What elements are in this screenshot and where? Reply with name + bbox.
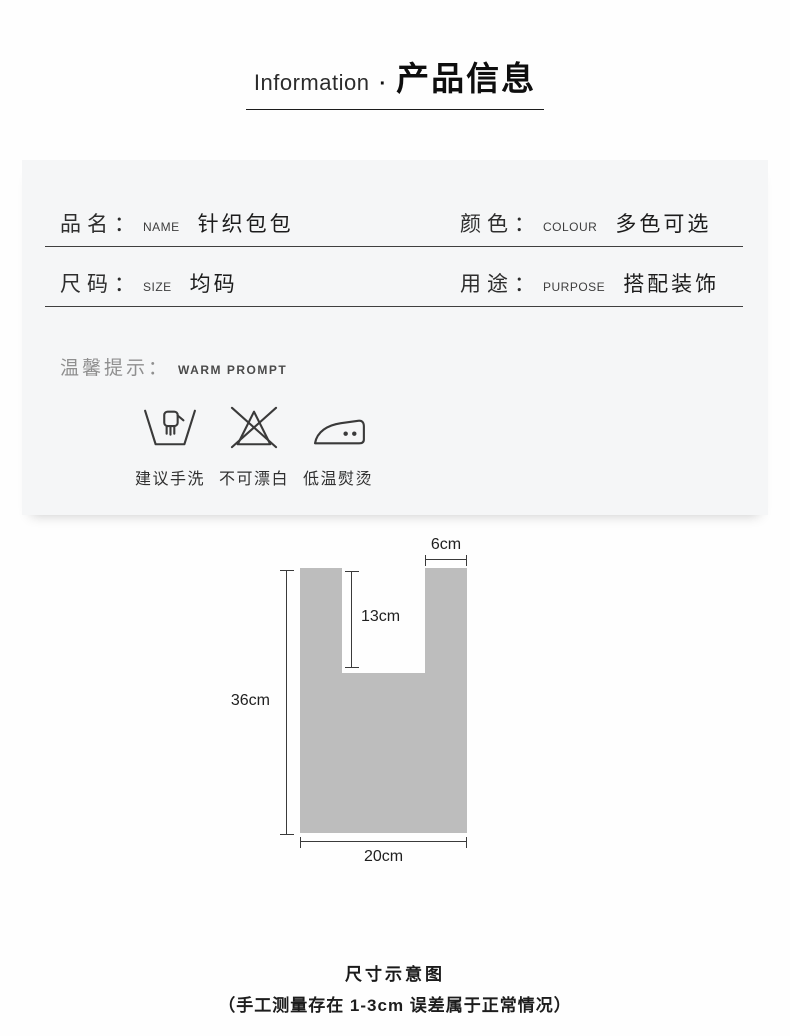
spec-value: 多色可选: [615, 208, 711, 238]
dimension-line-width: [300, 841, 467, 842]
care-item-iron-low-temp: 低温熨烫: [304, 404, 372, 489]
page-title-chinese: 产品信息: [396, 52, 536, 100]
spec-label-cn: 颜色：: [460, 208, 541, 238]
iron-low-temp-icon: [309, 404, 367, 455]
product-spec-card: 品名： NAME 针织包包 颜色： COLOUR 多色可选 尺码： SIZE 均…: [22, 160, 768, 515]
dimension-line-height: [286, 570, 287, 835]
spec-table: 品名： NAME 针织包包 颜色： COLOUR 多色可选 尺码： SIZE 均…: [45, 160, 743, 307]
care-item-do-not-bleach: 不可漂白: [220, 404, 288, 489]
care-item-hand-wash: 建议手洗: [136, 404, 204, 489]
spec-label-en: COLOUR: [543, 220, 597, 234]
page-header: Information · 产品信息: [0, 52, 790, 110]
warm-prompt-label-en: WARM PROMPT: [178, 363, 287, 377]
spec-value: 针织包包: [198, 208, 294, 238]
title-separator-dot: ·: [379, 73, 386, 96]
spec-label-cn: 品名：: [60, 208, 141, 238]
diagram-caption-note: （手工测量存在 1-3cm 误差属于正常情况）: [0, 991, 790, 1016]
spec-row-2: 尺码： SIZE 均码 用途： PURPOSE 搭配装饰: [45, 247, 743, 307]
warm-prompt-label-cn: 温馨提示：: [60, 353, 170, 380]
care-label: 低温熨烫: [303, 465, 373, 489]
spec-label-en: PURPOSE: [543, 280, 605, 294]
page-title-english: Information: [254, 70, 370, 96]
dimension-line-strap-width: [425, 559, 467, 560]
diagram-caption-title: 尺寸示意图: [0, 960, 790, 985]
do-not-bleach-icon: [225, 404, 283, 455]
care-label: 不可漂白: [219, 465, 289, 489]
care-label: 建议手洗: [135, 465, 205, 489]
warm-prompt-heading: 温馨提示： WARM PROMPT: [60, 353, 768, 380]
product-info-page: Information · 产品信息 品名： NAME 针织包包 颜色： COL…: [0, 0, 790, 1036]
spec-cell-size: 尺码： SIZE 均码: [45, 268, 394, 298]
spec-row-1: 品名： NAME 针织包包 颜色： COLOUR 多色可选: [45, 160, 743, 247]
spec-label-en: SIZE: [143, 280, 172, 294]
spec-value: 均码: [190, 268, 238, 298]
dimension-line-handle-depth: [351, 571, 352, 668]
spec-value: 搭配装饰: [623, 268, 719, 298]
bag-width-label: 20cm: [300, 848, 467, 866]
hand-wash-icon: [141, 404, 199, 455]
spec-cell-colour: 颜色： COLOUR 多色可选: [394, 208, 743, 238]
care-instructions-row: 建议手洗 不可漂白: [22, 404, 768, 489]
strap-width-label: 6cm: [419, 536, 473, 554]
spec-cell-name: 品名： NAME 针织包包: [45, 208, 394, 238]
page-title: Information · 产品信息: [246, 52, 544, 110]
spec-label-cn: 用途：: [460, 268, 541, 298]
spec-cell-purpose: 用途： PURPOSE 搭配装饰: [394, 268, 743, 298]
bag-height-label: 36cm: [212, 692, 270, 710]
spec-label-en: NAME: [143, 220, 180, 234]
spec-label-cn: 尺码：: [60, 268, 141, 298]
handle-depth-label: 13cm: [361, 608, 400, 626]
